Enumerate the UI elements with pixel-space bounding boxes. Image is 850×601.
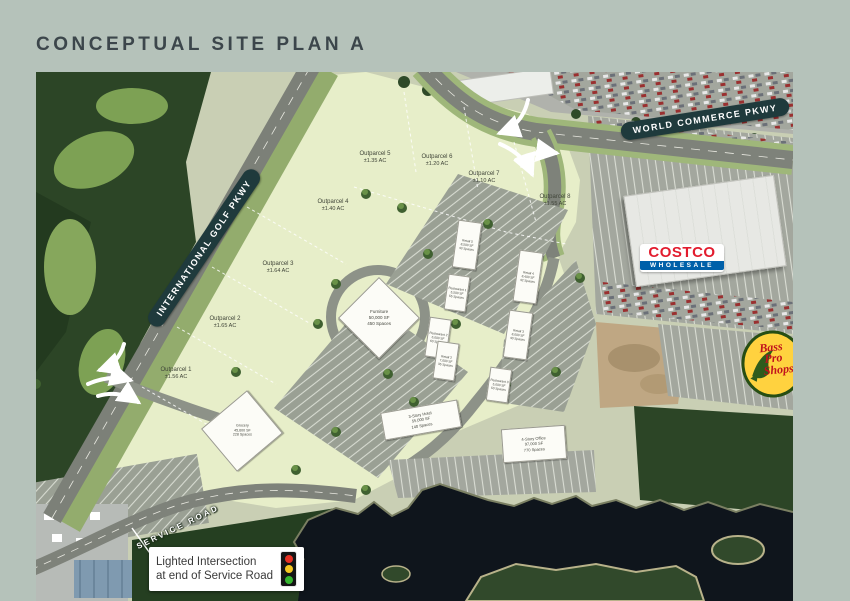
bass-pro-text: Bass Pro Shops <box>759 340 793 377</box>
costco-logo: COSTCO WHOLESALE <box>640 244 724 272</box>
outparcel-7-label: Outparcel 7 ±1.10 AC <box>468 170 499 186</box>
outparcel-4-name: Outparcel 4 <box>317 198 348 206</box>
aerial-base-art <box>36 72 793 601</box>
outparcel-3-area: ±1.64 AC <box>262 268 293 275</box>
outparcel-5-area: ±1.35 AC <box>359 158 390 165</box>
outparcel-1-label: Outparcel 1 ±1.56 AC <box>160 366 191 382</box>
building-office: 4-Story Office97,000 SF770 Spaces <box>501 425 567 463</box>
outparcel-1-area: ±1.56 AC <box>160 374 191 381</box>
callout-line2: at end of Service Road <box>156 569 273 583</box>
outparcel-3-name: Outparcel 3 <box>262 260 293 268</box>
callout-text: Lighted Intersection at end of Service R… <box>156 555 273 584</box>
outparcel-8-label: Outparcel 8 ±1.55 AC <box>539 193 570 209</box>
building-restaurant-3: Restaurant 35,000 SF50 Spaces <box>486 367 513 404</box>
outparcel-7-name: Outparcel 7 <box>468 170 499 178</box>
costco-logo-wholesale: WHOLESALE <box>640 261 724 270</box>
outparcel-2-label: Outparcel 2 ±1.65 AC <box>209 315 240 331</box>
site-plan-map: COSTCO WHOLESALE Bass Pro Shops WORLD CO… <box>36 72 793 601</box>
lighted-intersection-callout: Lighted Intersection at end of Service R… <box>149 547 304 591</box>
costco-logo-name: COSTCO <box>640 244 724 261</box>
outparcel-2-area: ±1.65 AC <box>209 323 240 330</box>
outparcel-4-area: ±1.40 AC <box>317 206 348 213</box>
outparcel-7-area: ±1.10 AC <box>468 178 499 185</box>
page-title: CONCEPTUAL SITE PLAN A <box>36 34 367 56</box>
outparcel-5-name: Outparcel 5 <box>359 150 390 158</box>
bass-pro-line3: Shops <box>763 363 793 377</box>
outparcel-8-name: Outparcel 8 <box>539 193 570 201</box>
outparcel-6-label: Outparcel 6 ±1.20 AC <box>421 153 452 169</box>
outparcel-6-name: Outparcel 6 <box>421 153 452 161</box>
outparcel-2-name: Outparcel 2 <box>209 315 240 323</box>
outparcel-3-label: Outparcel 3 ±1.64 AC <box>262 260 293 276</box>
traffic-light-icon <box>280 551 297 587</box>
callout-line1: Lighted Intersection <box>156 555 273 569</box>
bass-pro-shops-logo: Bass Pro Shops <box>738 327 793 401</box>
outparcel-1-name: Outparcel 1 <box>160 366 191 374</box>
outparcel-6-area: ±1.20 AC <box>421 161 452 168</box>
outparcel-5-label: Outparcel 5 ±1.35 AC <box>359 150 390 166</box>
outparcel-4-label: Outparcel 4 ±1.40 AC <box>317 198 348 214</box>
outparcel-8-area: ±1.55 AC <box>539 201 570 208</box>
